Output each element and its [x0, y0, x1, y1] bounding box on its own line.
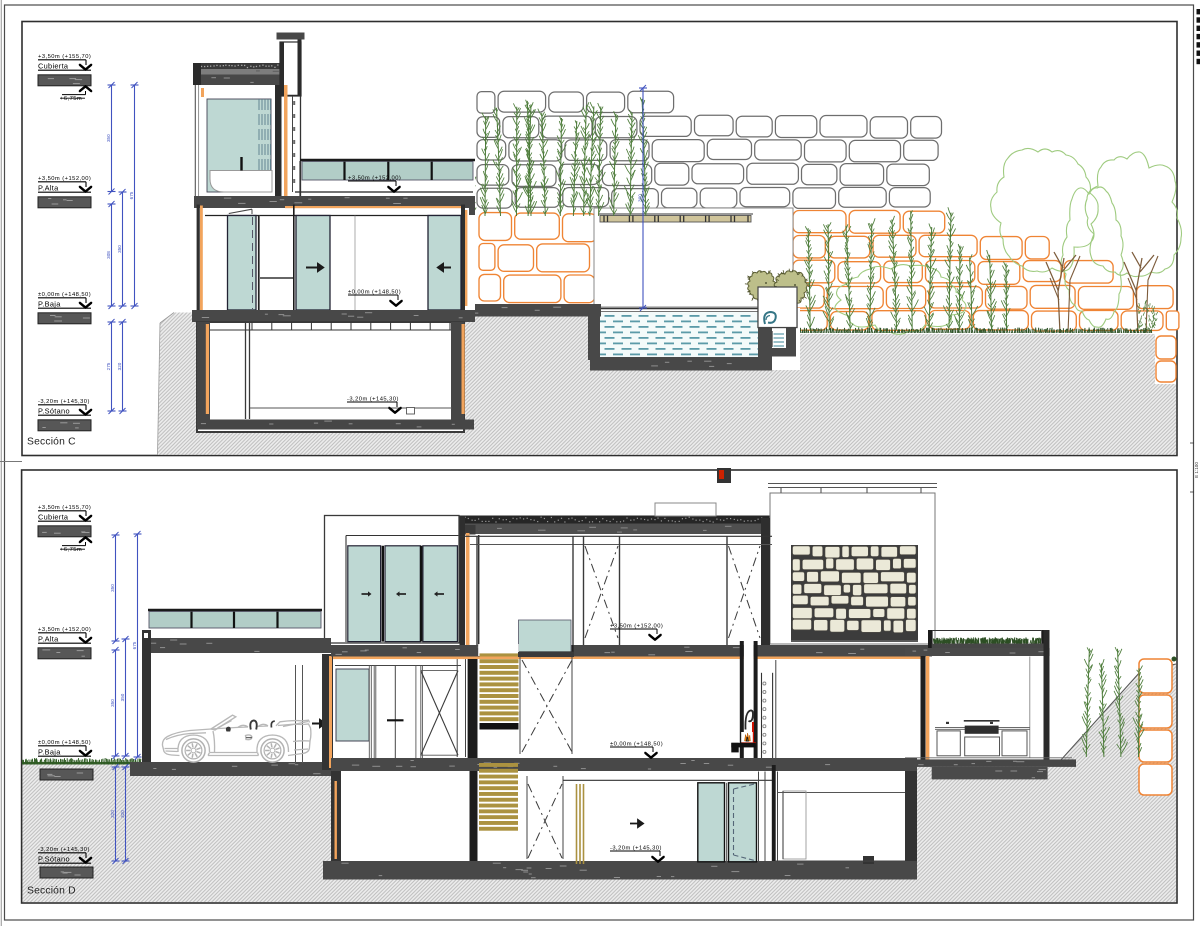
- svg-text:350: 350: [110, 584, 115, 592]
- svg-text:P.Baja: P.Baja: [38, 747, 61, 756]
- svg-text:E 1:100: E 1:100: [1194, 462, 1199, 478]
- svg-text:P.Sótano: P.Sótano: [38, 854, 70, 863]
- svg-text:350: 350: [117, 245, 122, 253]
- svg-text:-3,20m (+145,30): -3,20m (+145,30): [38, 847, 90, 853]
- svg-text:Cubierta: Cubierta: [38, 512, 69, 521]
- svg-text:±0,00m (+148,50): ±0,00m (+148,50): [38, 292, 91, 298]
- svg-text:308: 308: [106, 251, 111, 259]
- svg-text:320: 320: [120, 810, 125, 818]
- svg-text:Sección D: Sección D: [27, 886, 76, 897]
- svg-text:P.Sótano: P.Sótano: [38, 406, 70, 415]
- svg-text:+6,75m: +6,75m: [60, 96, 82, 102]
- svg-text:Cubierta: Cubierta: [38, 61, 69, 70]
- svg-text:+3,50m (+155,70): +3,50m (+155,70): [38, 54, 91, 60]
- svg-text:±0,00m (+148,50): ±0,00m (+148,50): [38, 740, 91, 746]
- svg-text:320: 320: [110, 810, 115, 818]
- svg-text:Sección C: Sección C: [27, 437, 76, 448]
- svg-text:350: 350: [110, 699, 115, 707]
- svg-text:P.Alta: P.Alta: [38, 183, 59, 192]
- svg-text:350: 350: [120, 693, 125, 701]
- svg-text:P.Alta: P.Alta: [38, 634, 59, 643]
- svg-text:675: 675: [132, 641, 137, 649]
- svg-text:300: 300: [638, 194, 643, 202]
- svg-text:350: 350: [106, 134, 111, 142]
- svg-text:+3,50m (+152,00): +3,50m (+152,00): [38, 176, 91, 182]
- svg-text:+3,50m (+155,70): +3,50m (+155,70): [38, 505, 91, 511]
- svg-text:+6,75m: +6,75m: [60, 547, 82, 553]
- svg-text:-3,20m (+145,30): -3,20m (+145,30): [38, 399, 90, 405]
- svg-text:+3,50m (+152,00): +3,50m (+152,00): [38, 627, 91, 633]
- svg-text:675: 675: [129, 191, 134, 199]
- svg-text:320: 320: [117, 362, 122, 370]
- svg-text:P.Baja: P.Baja: [38, 299, 61, 308]
- svg-text:275: 275: [106, 362, 111, 370]
